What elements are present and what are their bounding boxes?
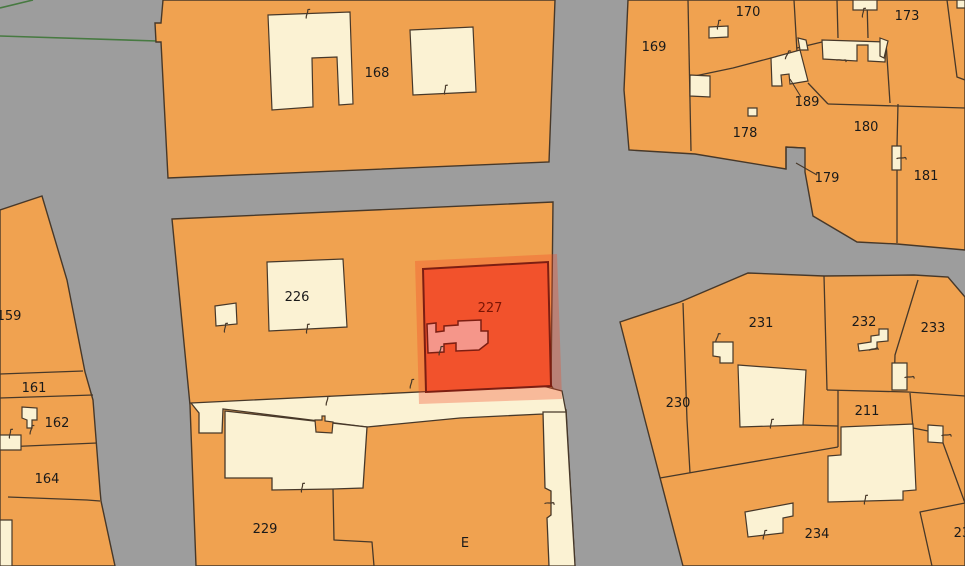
building[interactable] (410, 27, 476, 95)
building[interactable] (828, 424, 916, 502)
parcel-label-234: 234 (805, 527, 830, 542)
parcel-label-230: 230 (666, 396, 691, 411)
parcel-label-227: 227 (478, 301, 503, 316)
parcel-label-170: 170 (736, 5, 761, 20)
building[interactable] (748, 108, 757, 116)
building[interactable] (215, 303, 237, 326)
parcel-label-180: 180 (854, 120, 879, 135)
parcel-label-169: 169 (642, 40, 667, 55)
map-canvas[interactable]: 1681691701731781791801811892262272292302… (0, 0, 965, 566)
building[interactable] (0, 435, 21, 450)
parcel-label-179: 179 (815, 171, 840, 186)
parcel-label-231: 231 (749, 316, 774, 331)
parcel-227-selected[interactable] (423, 262, 551, 392)
map-viewport[interactable]: 1681691701731781791801811892262272292302… (0, 0, 965, 566)
building[interactable] (822, 40, 886, 62)
parcel-label-181: 181 (914, 169, 939, 184)
parcel-label-159: 159 (0, 309, 21, 324)
building[interactable] (709, 26, 728, 38)
parcel-168[interactable] (155, 0, 555, 178)
parcel-label-164: 164 (35, 472, 60, 487)
parcel-label-211: 211 (855, 404, 880, 419)
parcel-label-161: 161 (22, 381, 47, 396)
building[interactable] (690, 75, 710, 97)
parcel-label-233: 233 (921, 321, 946, 336)
building[interactable] (928, 425, 943, 443)
building[interactable] (0, 520, 12, 566)
parcel-label-E: E (461, 536, 469, 551)
parcel-label-229: 229 (253, 522, 278, 537)
parcel-label-235: 235 (954, 526, 965, 541)
parcel-label-178: 178 (733, 126, 758, 141)
selected-building[interactable] (427, 320, 488, 353)
building[interactable] (957, 0, 965, 8)
parcel-label-173: 173 (895, 9, 920, 24)
parcel-label-162: 162 (45, 416, 70, 431)
parcel-label-226: 226 (285, 290, 310, 305)
parcel-label-189: 189 (795, 95, 820, 110)
parcel-label-168: 168 (365, 66, 390, 81)
building[interactable] (268, 12, 353, 110)
building[interactable] (892, 363, 907, 390)
building[interactable] (738, 365, 806, 427)
parcel-label-232: 232 (852, 315, 877, 330)
building[interactable] (798, 38, 808, 50)
